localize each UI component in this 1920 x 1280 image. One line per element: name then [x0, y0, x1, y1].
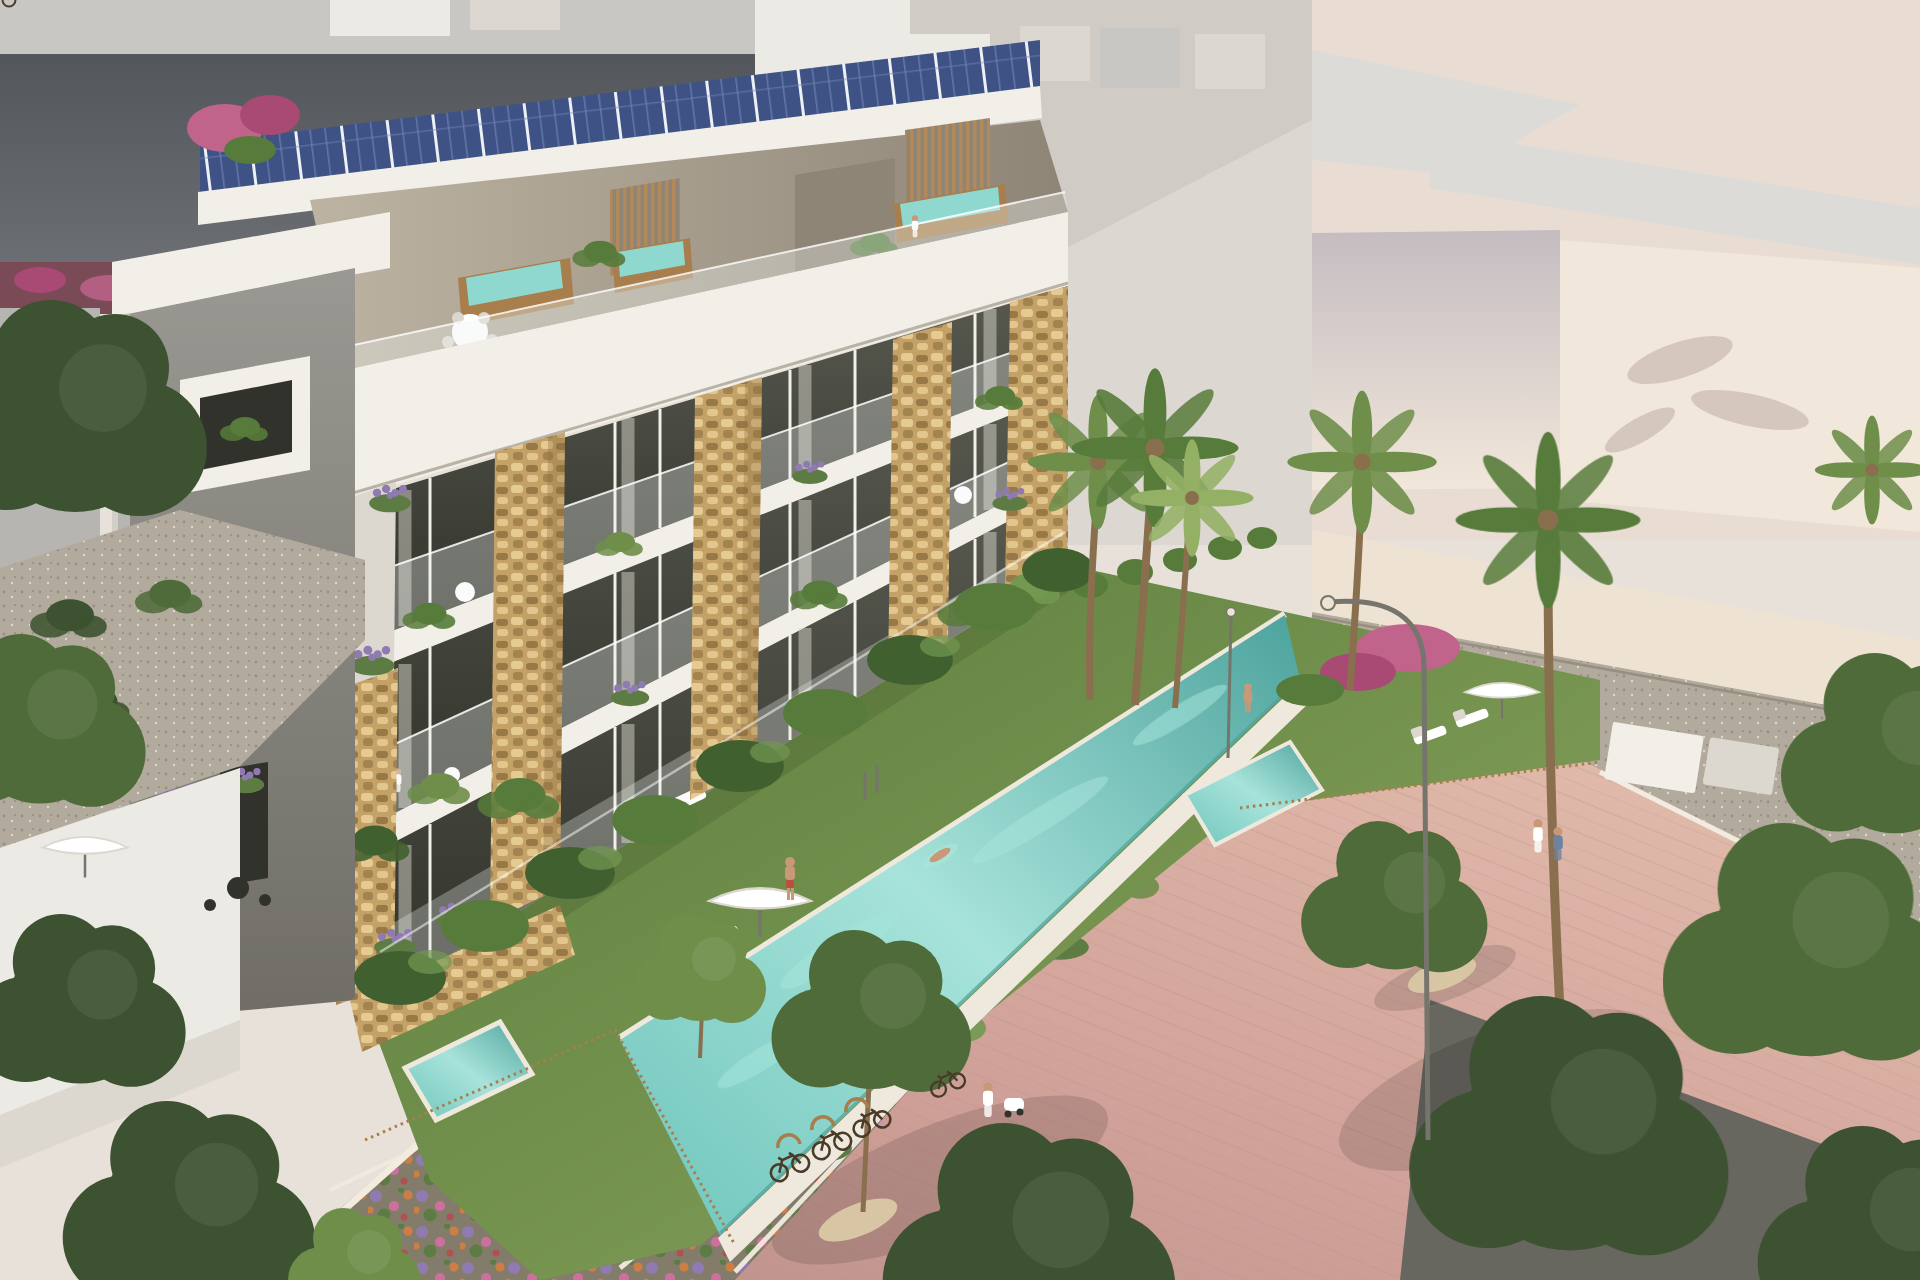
person-right-garden [1244, 683, 1252, 712]
parapet-block [1100, 28, 1180, 88]
stone-pillar [1005, 286, 1068, 590]
person-couple [1533, 819, 1543, 852]
render-stage [0, 0, 1920, 1280]
patio-table [227, 877, 249, 899]
render-scene [0, 0, 1920, 1280]
person-couple [1553, 827, 1563, 860]
parapet-block [1195, 34, 1265, 89]
